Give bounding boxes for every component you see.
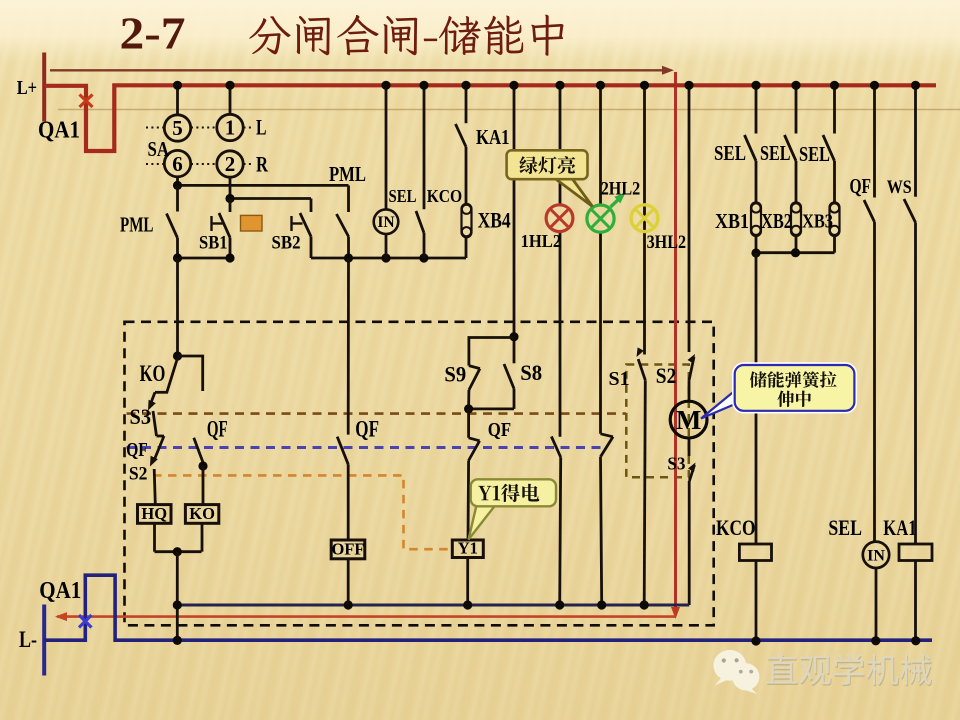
svg-text:QF: QF: [488, 419, 511, 441]
svg-text:S3: S3: [130, 404, 152, 429]
svg-text:XB3: XB3: [802, 211, 833, 233]
svg-text:SEL: SEL: [828, 515, 862, 540]
svg-text:2HL2: 2HL2: [601, 179, 641, 200]
svg-text:2: 2: [225, 152, 236, 176]
svg-text:QF: QF: [126, 439, 148, 461]
svg-text:XB1: XB1: [715, 209, 749, 233]
svg-text:XB2: XB2: [761, 209, 792, 233]
svg-text:M: M: [676, 405, 701, 435]
svg-text:SEL: SEL: [760, 141, 791, 165]
svg-text:XB4: XB4: [478, 208, 511, 233]
svg-text:2-7: 2-7: [120, 8, 186, 59]
svg-text:QF: QF: [355, 416, 379, 442]
svg-text:SB2: SB2: [272, 233, 301, 253]
svg-text:PML: PML: [120, 212, 154, 236]
svg-text:WS: WS: [887, 177, 912, 198]
svg-text:SEL: SEL: [389, 186, 417, 206]
svg-text:S3: S3: [667, 454, 685, 474]
svg-text:KO: KO: [189, 504, 215, 523]
svg-text:KCO: KCO: [716, 515, 755, 540]
svg-text:IN: IN: [377, 214, 394, 231]
svg-text:6: 6: [172, 152, 183, 176]
svg-text:L+: L+: [17, 77, 37, 99]
svg-text:1HL2: 1HL2: [521, 231, 562, 251]
svg-text:PML: PML: [329, 162, 366, 186]
svg-text:SB1: SB1: [199, 233, 228, 253]
svg-text:S2: S2: [129, 463, 148, 484]
svg-text:QF: QF: [207, 416, 228, 442]
svg-text:OFF: OFF: [332, 540, 365, 559]
svg-text:QA1: QA1: [39, 577, 81, 604]
svg-text:KA1: KA1: [476, 125, 510, 149]
svg-text:HQ: HQ: [141, 504, 167, 523]
svg-text:L-: L-: [19, 627, 37, 652]
svg-text:L: L: [256, 116, 267, 140]
svg-text:KA1: KA1: [883, 515, 916, 540]
svg-text:S8: S8: [520, 360, 542, 385]
svg-text:SA: SA: [148, 137, 170, 161]
svg-text:SEL: SEL: [799, 142, 830, 166]
svg-text:KO: KO: [140, 361, 166, 387]
svg-text:3HL2: 3HL2: [647, 232, 687, 253]
svg-text:1: 1: [225, 116, 236, 140]
svg-text:5: 5: [172, 116, 183, 140]
svg-text:R: R: [256, 153, 268, 177]
svg-text:QF: QF: [850, 174, 872, 198]
svg-text:Y1: Y1: [458, 538, 478, 557]
svg-text:S9: S9: [444, 362, 466, 387]
svg-text:SEL: SEL: [714, 141, 746, 165]
svg-text:KCO: KCO: [427, 186, 463, 206]
svg-text:S2: S2: [656, 364, 677, 388]
svg-text:QA1: QA1: [38, 118, 80, 144]
svg-text:S1: S1: [609, 368, 630, 390]
svg-text:IN: IN: [867, 548, 885, 565]
